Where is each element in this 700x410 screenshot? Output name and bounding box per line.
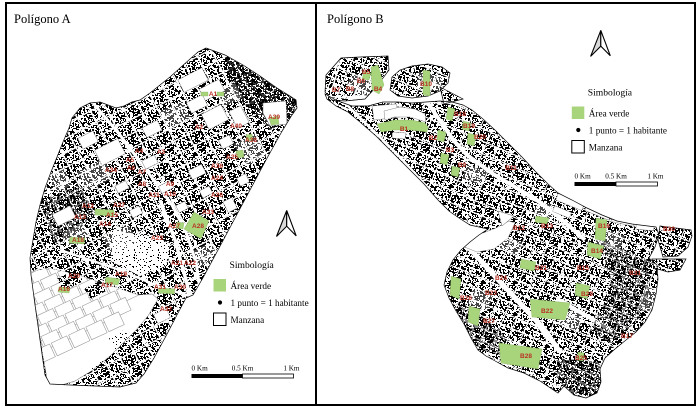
svg-text:A2: A2 bbox=[195, 124, 204, 131]
svg-text:B2: B2 bbox=[429, 135, 438, 142]
svg-text:A1: A1 bbox=[209, 91, 218, 98]
svg-text:B24: B24 bbox=[495, 275, 507, 282]
svg-text:B13: B13 bbox=[541, 223, 553, 230]
svg-text:B8: B8 bbox=[346, 86, 355, 93]
svg-text:A21: A21 bbox=[171, 260, 183, 267]
svg-text:A33: A33 bbox=[202, 209, 214, 216]
svg-text:Manzana: Manzana bbox=[589, 143, 623, 153]
svg-text:B10: B10 bbox=[420, 81, 432, 88]
svg-text:A9: A9 bbox=[166, 181, 175, 188]
svg-text:B12: B12 bbox=[513, 225, 525, 232]
svg-text:B20: B20 bbox=[474, 134, 486, 141]
svg-text:B30: B30 bbox=[663, 226, 675, 233]
svg-text:Área verde: Área verde bbox=[231, 281, 272, 291]
svg-text:A27: A27 bbox=[168, 223, 180, 230]
svg-text:B4: B4 bbox=[374, 86, 383, 93]
svg-text:Manzana: Manzana bbox=[231, 315, 265, 325]
svg-text:A10: A10 bbox=[164, 191, 176, 198]
svg-text:A32: A32 bbox=[160, 306, 172, 313]
svg-text:A38: A38 bbox=[245, 137, 257, 144]
svg-text:0 Km: 0 Km bbox=[192, 365, 209, 373]
svg-text:B6: B6 bbox=[357, 78, 366, 85]
svg-text:B25: B25 bbox=[575, 355, 587, 362]
svg-text:A5: A5 bbox=[126, 157, 135, 164]
svg-text:B1: B1 bbox=[400, 126, 409, 133]
svg-text:Simbología: Simbología bbox=[230, 260, 275, 271]
svg-text:A30: A30 bbox=[174, 284, 186, 291]
svg-text:1 punto = 1 habitante: 1 punto = 1 habitante bbox=[589, 126, 667, 136]
svg-text:A18: A18 bbox=[72, 237, 84, 244]
svg-text:A34: A34 bbox=[105, 167, 117, 174]
svg-text:B27: B27 bbox=[483, 318, 495, 325]
svg-text:B23: B23 bbox=[485, 290, 497, 297]
svg-text:A23: A23 bbox=[151, 235, 163, 242]
svg-text:A39: A39 bbox=[268, 114, 280, 121]
svg-text:A40: A40 bbox=[230, 123, 242, 130]
svg-text:A3: A3 bbox=[157, 149, 166, 156]
svg-text:1 Km: 1 Km bbox=[647, 173, 664, 181]
svg-text:A37: A37 bbox=[113, 202, 125, 209]
svg-text:A12: A12 bbox=[82, 203, 94, 210]
svg-text:B18: B18 bbox=[454, 111, 466, 118]
svg-text:B14: B14 bbox=[591, 248, 603, 255]
svg-text:B29: B29 bbox=[581, 291, 593, 298]
svg-text:B15: B15 bbox=[577, 265, 589, 272]
svg-text:0.5 Km: 0.5 Km bbox=[605, 173, 627, 181]
svg-text:A15: A15 bbox=[106, 212, 118, 219]
svg-text:Polígono A: Polígono A bbox=[14, 12, 71, 26]
svg-text:B5: B5 bbox=[362, 69, 371, 76]
svg-text:A4: A4 bbox=[135, 148, 144, 155]
svg-text:A19: A19 bbox=[115, 271, 127, 278]
svg-text:A13: A13 bbox=[74, 214, 86, 221]
svg-text:A6: A6 bbox=[127, 165, 136, 172]
svg-text:Simbología: Simbología bbox=[588, 88, 633, 99]
svg-text:B3: B3 bbox=[446, 147, 455, 154]
svg-text:A28: A28 bbox=[192, 223, 204, 230]
svg-text:A25: A25 bbox=[226, 154, 238, 161]
svg-text:B11: B11 bbox=[505, 165, 517, 172]
svg-text:A7: A7 bbox=[138, 169, 147, 176]
svg-text:A31: A31 bbox=[154, 284, 166, 291]
svg-text:A16: A16 bbox=[58, 286, 70, 293]
svg-text:0.5 Km: 0.5 Km bbox=[232, 365, 254, 373]
svg-text:A17: A17 bbox=[101, 282, 113, 289]
svg-text:B19: B19 bbox=[463, 123, 475, 130]
svg-text:A22: A22 bbox=[184, 260, 196, 267]
svg-text:B28: B28 bbox=[520, 353, 532, 360]
svg-text:A24: A24 bbox=[211, 175, 223, 182]
svg-text:1 punto = 1 habitante: 1 punto = 1 habitante bbox=[231, 298, 309, 308]
svg-text:A8: A8 bbox=[138, 181, 147, 188]
svg-text:A14: A14 bbox=[99, 221, 111, 228]
svg-text:B17: B17 bbox=[621, 333, 633, 340]
svg-text:B22: B22 bbox=[541, 308, 553, 315]
svg-text:A11: A11 bbox=[148, 192, 160, 199]
svg-text:Polígono B: Polígono B bbox=[327, 12, 384, 26]
svg-text:B31: B31 bbox=[629, 270, 641, 277]
svg-text:Área verde: Área verde bbox=[589, 109, 630, 119]
svg-text:B26: B26 bbox=[460, 295, 472, 302]
svg-text:A36: A36 bbox=[211, 163, 223, 170]
svg-text:B9: B9 bbox=[458, 162, 467, 169]
svg-text:1 Km: 1 Km bbox=[283, 365, 300, 373]
svg-text:0 Km: 0 Km bbox=[575, 173, 592, 181]
svg-text:B7: B7 bbox=[332, 87, 341, 94]
svg-text:B21: B21 bbox=[535, 265, 547, 272]
svg-text:A20: A20 bbox=[68, 273, 80, 280]
svg-text:A26: A26 bbox=[211, 192, 223, 199]
svg-text:B16: B16 bbox=[598, 223, 610, 230]
